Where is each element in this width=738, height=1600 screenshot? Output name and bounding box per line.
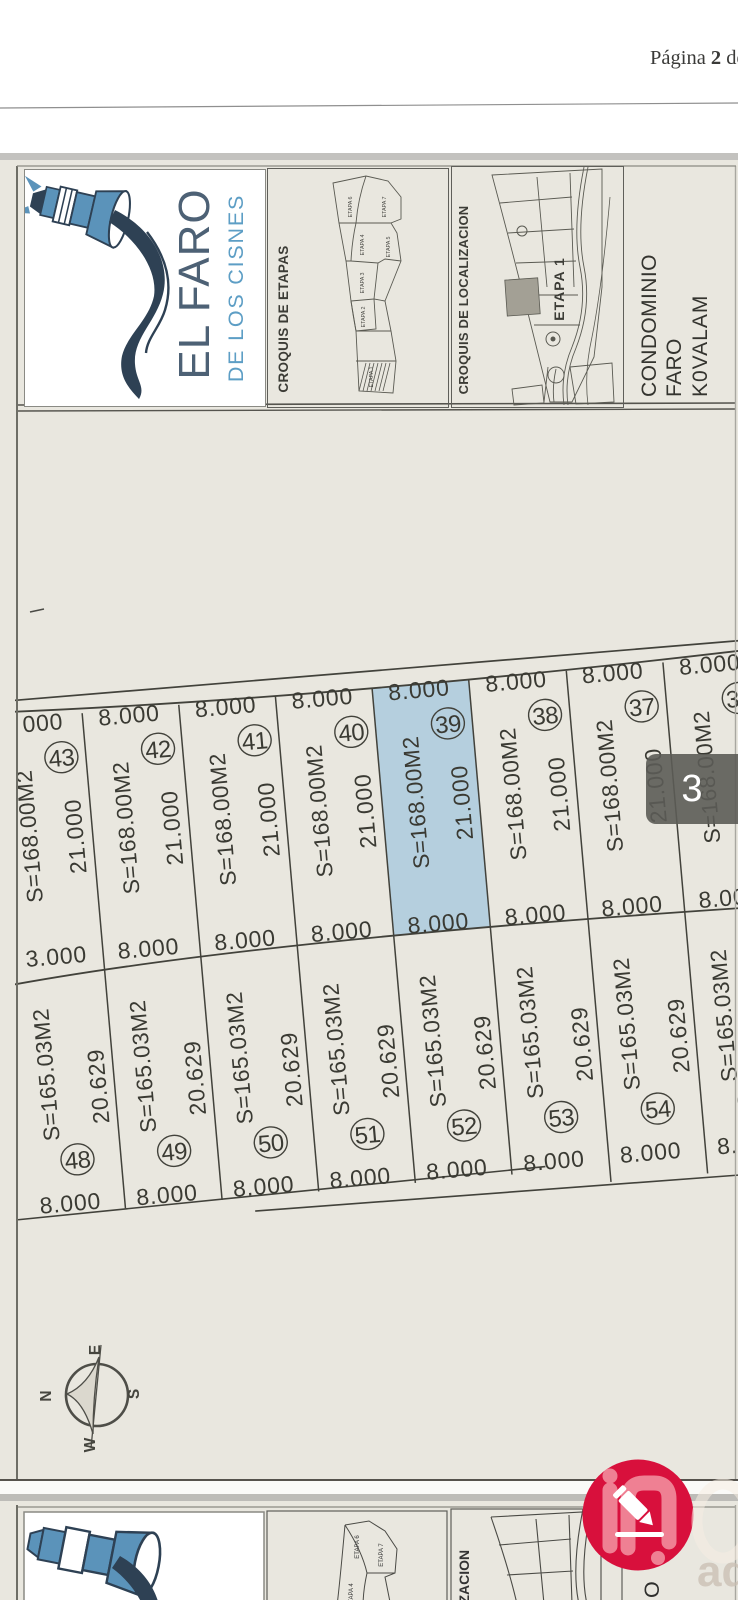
svg-text:ad: ad [697, 1547, 738, 1596]
